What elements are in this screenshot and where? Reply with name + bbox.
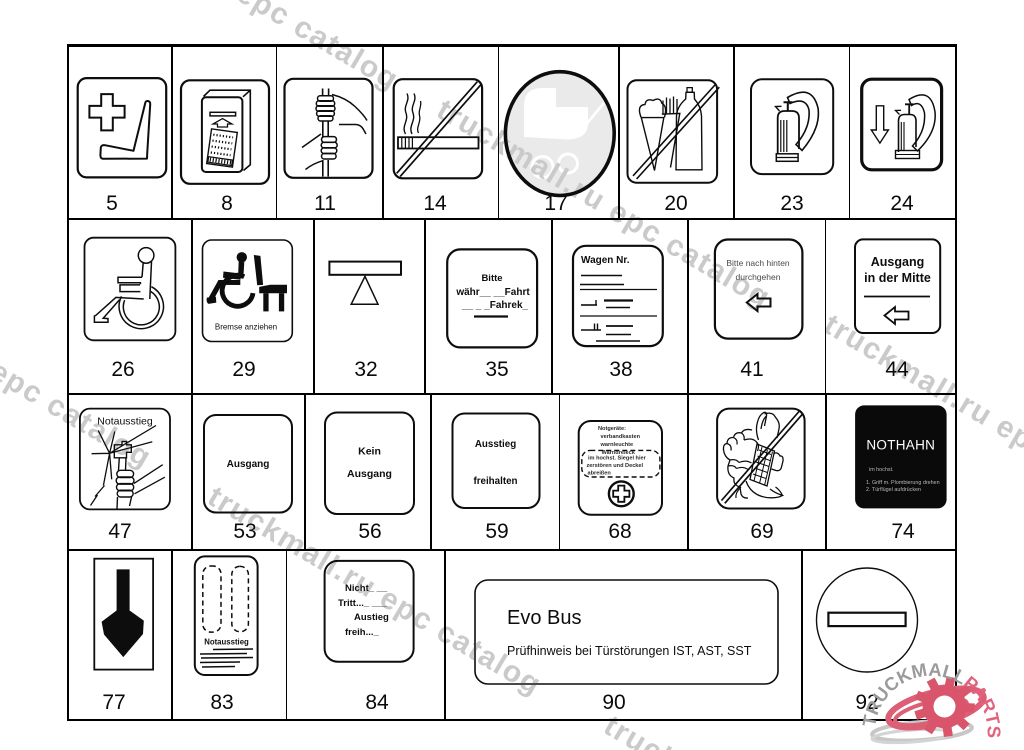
svg-text:Wagen Nr.: Wagen Nr. [581,255,630,266]
svg-text:Evo Bus: Evo Bus [507,607,581,629]
svg-text:warnleuchte: warnleuchte [600,442,634,448]
svg-text:NOTHAHN: NOTHAHN [866,438,935,453]
svg-text:in der Mitte: in der Mitte [864,271,931,285]
svg-text:Ausgang: Ausgang [227,459,270,470]
svg-text:Notgeräte:: Notgeräte: [598,426,626,432]
svg-text:Kein: Kein [358,446,381,458]
svg-text:abreißen: abreißen [588,471,612,477]
svg-text:Ausgang: Ausgang [871,255,924,269]
svg-text:Ausstieg: Ausstieg [475,439,516,450]
svg-text:verbandkasten: verbandkasten [601,434,641,440]
svg-text:Ausgang: Ausgang [347,468,392,480]
svg-text:Notausstieg: Notausstieg [204,638,249,647]
svg-text:Bitte: Bitte [481,273,502,284]
svg-text:freih..._: freih..._ [345,627,380,638]
svg-text:Bremse anziehen: Bremse anziehen [215,323,277,332]
svg-text:2. Türflügel aufdrücken: 2. Türflügel aufdrücken [866,487,921,493]
svg-text:währ__ __Fahrt: währ__ __Fahrt [455,287,530,298]
svg-text:freihalten: freihalten [473,476,517,487]
svg-text:im hochst.: im hochst. [869,467,894,473]
svg-text:1. Griff m. Plombierung drehen: 1. Griff m. Plombierung drehen [866,480,940,486]
svg-text:zerstören und Deckel: zerstören und Deckel [587,463,644,469]
svg-text:im hochst. Siegel hier: im hochst. Siegel hier [588,456,647,462]
svg-text:__ _ _Fahrek_: __ _ _Fahrek_ [461,300,529,311]
